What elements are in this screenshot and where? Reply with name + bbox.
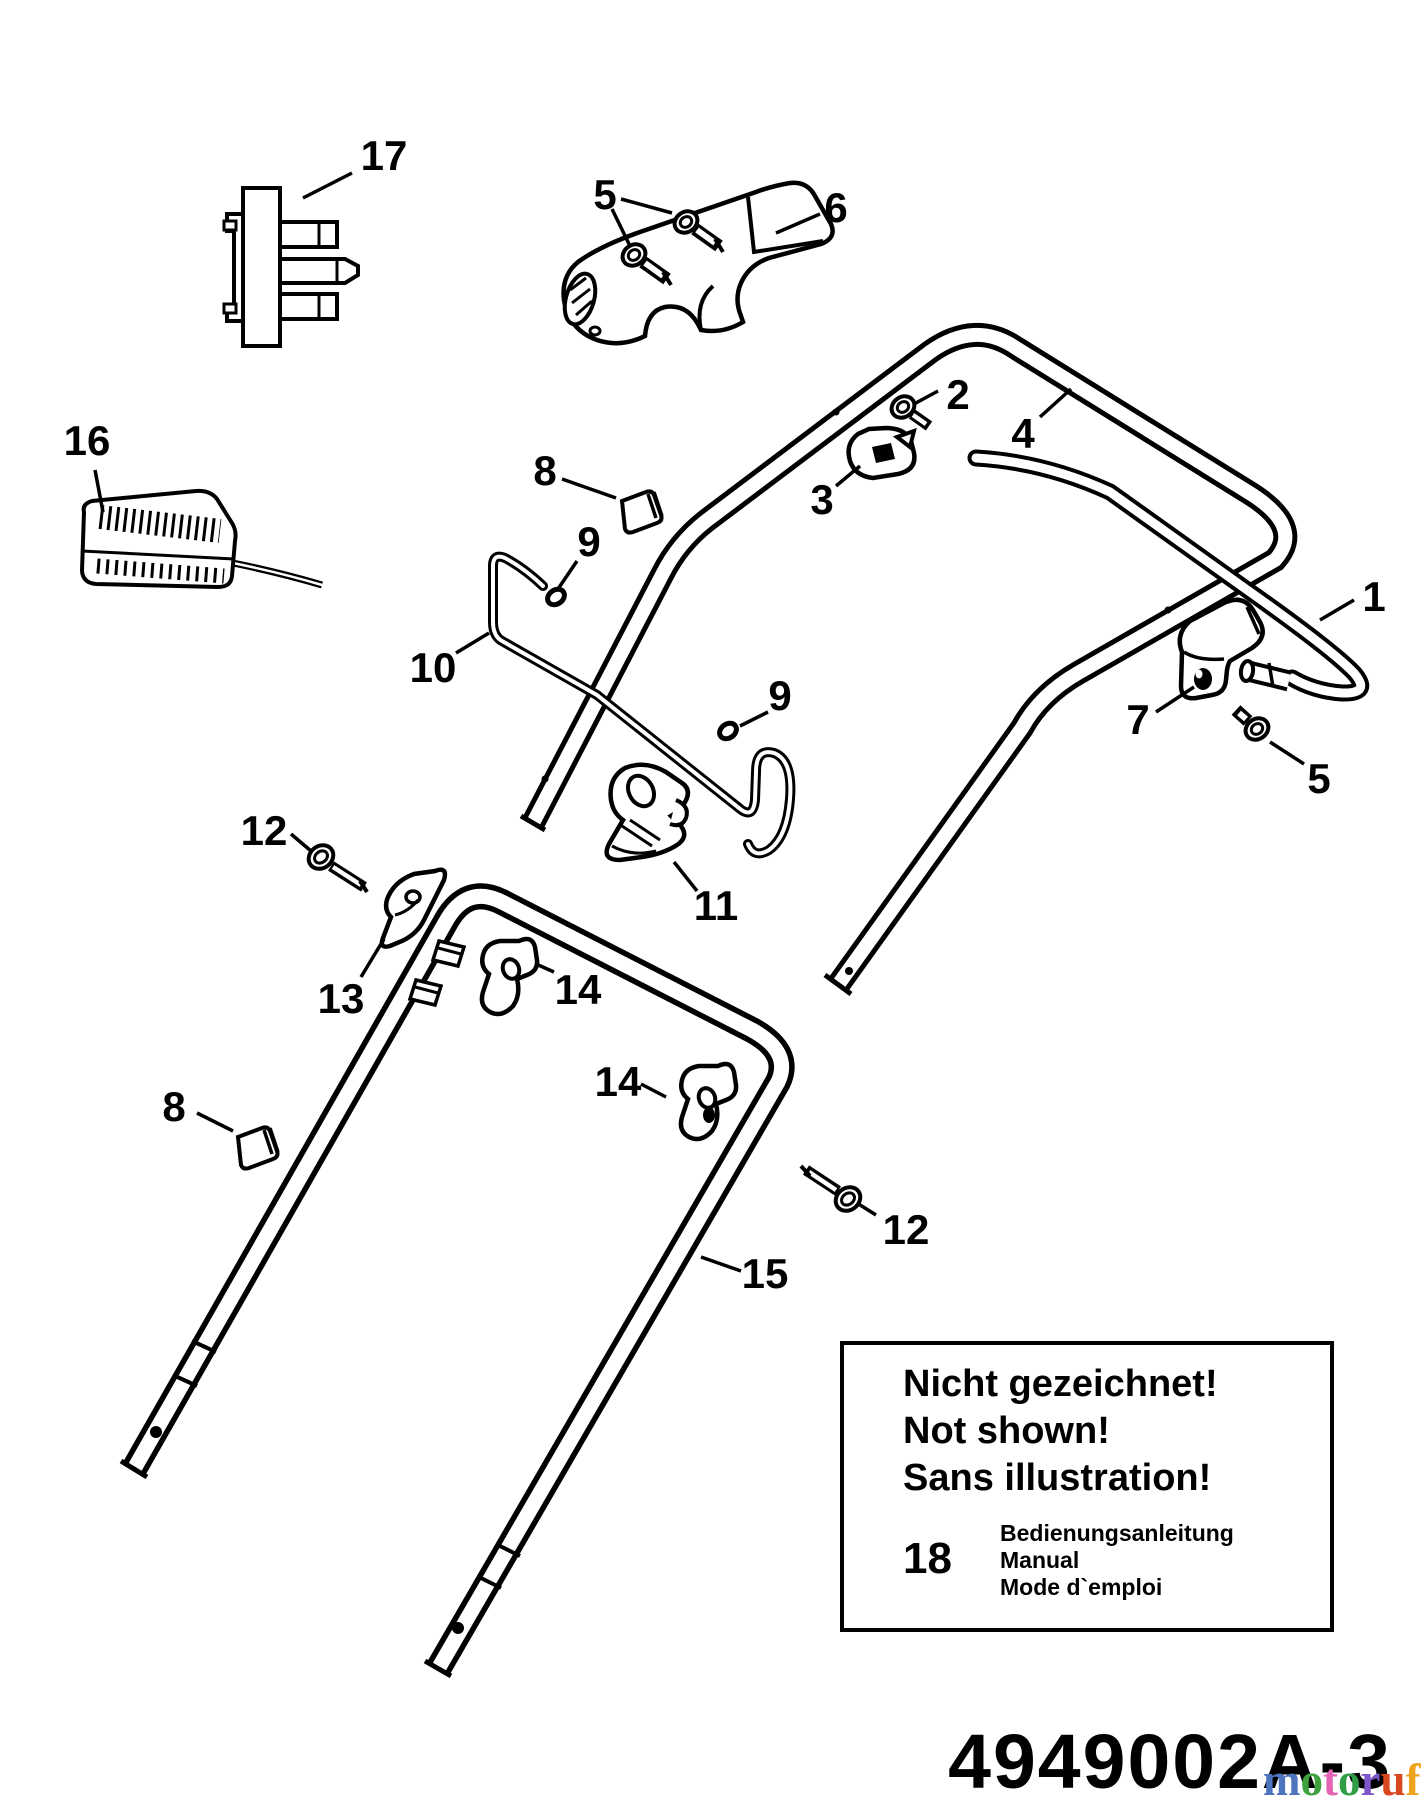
leader-lines (95, 173, 1354, 1271)
cable-guide (607, 765, 688, 860)
plug-plate-tab (224, 221, 236, 230)
tube-hole-mark (1165, 607, 1172, 614)
leader-15 (701, 1257, 741, 1271)
callout-1: 1 (1362, 573, 1385, 620)
wing-knob-lower (681, 1064, 736, 1139)
callout-9-upper: 9 (577, 518, 600, 565)
leader-4 (1040, 389, 1071, 417)
leader-2 (914, 391, 938, 404)
mounting-hole (150, 1426, 162, 1438)
wm-letter-t: t (1323, 1755, 1338, 1800)
wm-letter-o1: o (1301, 1755, 1324, 1800)
callout-6: 6 (824, 184, 847, 231)
wm-letter-o2: o (1338, 1755, 1361, 1800)
leader-12-lower (857, 1203, 876, 1215)
info-line-de: Nicht gezeichnet! (903, 1363, 1218, 1405)
plug-pin (280, 294, 337, 319)
screw-handlebar (887, 392, 929, 426)
leader-1 (1320, 600, 1354, 620)
callout-13: 13 (318, 975, 365, 1022)
info-item-desc-de: Bedienungsanleitung (1000, 1520, 1234, 1546)
callout-10: 10 (410, 644, 457, 691)
callout-17: 17 (361, 132, 408, 179)
mains-plug (224, 188, 358, 346)
leader-9-lower (740, 712, 768, 726)
callout-11: 11 (694, 882, 738, 929)
parts-diagram-page: 17 5 6 2 3 4 16 8 9 10 9 1 7 5 11 12 13 … (0, 0, 1421, 1800)
leader-5-top-a (621, 199, 672, 213)
mounting-hole (452, 1622, 464, 1634)
plug-pin-earth (280, 259, 358, 283)
callout-12-lower: 12 (883, 1206, 930, 1253)
info-item-desc-en: Manual (1000, 1547, 1079, 1573)
callout-8-upper: 8 (533, 447, 556, 494)
knob-boss-hole (703, 1107, 715, 1123)
callout-8-lower: 8 (162, 1083, 185, 1130)
watermark-logo: motoruf.de (1263, 1755, 1421, 1800)
leader-10 (456, 633, 489, 653)
bolt-upper (304, 840, 367, 892)
leader-17 (303, 173, 352, 198)
not-shown-box: Nicht gezeichnet! Not shown! Sans illust… (842, 1343, 1332, 1630)
cable-adjuster-upper (622, 491, 662, 532)
callout-14-lower: 14 (595, 1058, 642, 1105)
info-item-desc-fr: Mode d`emploi (1000, 1574, 1162, 1600)
wing-knob-upper (482, 939, 537, 1014)
ring-upper (545, 586, 568, 608)
callout-12-upper: 12 (241, 807, 288, 854)
callout-4: 4 (1011, 410, 1035, 457)
carriage-nut-lower (410, 980, 441, 1005)
bail-outline (976, 458, 1361, 693)
housing-hole (590, 327, 600, 335)
leader-9-upper (558, 561, 577, 589)
bolt-lower (801, 1166, 865, 1216)
info-line-en: Not shown! (903, 1410, 1110, 1452)
info-item-number: 18 (903, 1534, 952, 1583)
info-line-fr: Sans illustration! (903, 1457, 1211, 1499)
bail-core (976, 458, 1361, 693)
callout-5-right: 5 (1307, 755, 1330, 802)
clamp-hole-glint (1196, 670, 1203, 679)
battery-charger (82, 491, 322, 587)
screw-right (1236, 710, 1273, 744)
callout-2: 2 (946, 371, 969, 418)
callout-9-lower: 9 (768, 672, 791, 719)
lower-handlebar-outline (134, 896, 782, 1669)
tube-hole-mark (833, 409, 840, 416)
callout-3: 3 (810, 476, 833, 523)
plug-pin (280, 222, 337, 247)
plug-body (243, 188, 280, 346)
leader-8-lower (197, 1113, 233, 1131)
wm-letter-f: f (1406, 1755, 1421, 1800)
leader-13 (361, 939, 384, 977)
leader-5-right (1270, 742, 1304, 764)
leader-14-lower (641, 1084, 666, 1097)
switch-bail-tube (976, 458, 1361, 693)
callout-7: 7 (1126, 696, 1149, 743)
carriage-nut-upper (433, 941, 464, 966)
ring-lower (717, 720, 740, 742)
tube-hole-mark (845, 967, 853, 975)
leader-3 (836, 466, 860, 486)
leader-14-upper (536, 964, 554, 972)
callout-16: 16 (64, 417, 111, 464)
charger-cable-core (228, 562, 322, 585)
lower-handlebar-tube (121, 896, 782, 1676)
callout-5-top: 5 (593, 171, 616, 218)
tube-hole-mark (542, 776, 549, 783)
cable-adjuster-lower (238, 1127, 278, 1168)
wm-letter-m: m (1263, 1755, 1301, 1800)
sleeve-end-face (1240, 660, 1255, 681)
exploded-parts-diagram: 17 5 6 2 3 4 16 8 9 10 9 1 7 5 11 12 13 … (0, 0, 1421, 1800)
plug-plate-tab (224, 304, 236, 313)
callout-15: 15 (742, 1250, 789, 1297)
wm-letter-r: r (1361, 1755, 1381, 1800)
callout-14-upper: 14 (555, 966, 602, 1013)
bail-end-sleeve (1240, 660, 1289, 687)
cable-clip (849, 428, 915, 478)
leader-8-upper (562, 479, 616, 498)
wm-letter-u: u (1380, 1755, 1405, 1800)
leader-12-upper (291, 834, 311, 851)
